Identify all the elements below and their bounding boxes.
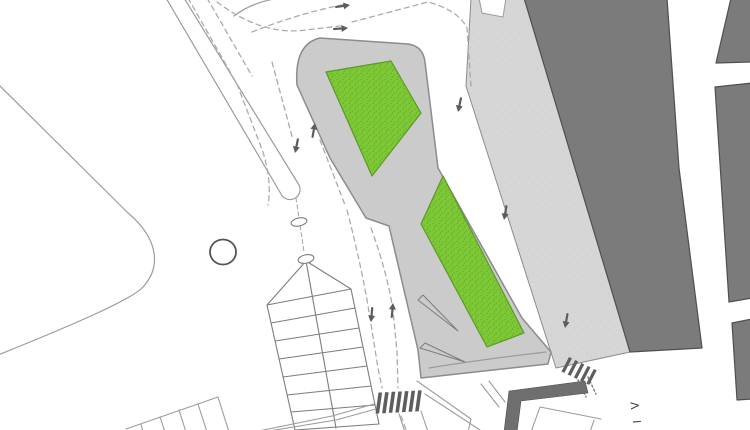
contraflow-dashed-down	[272, 62, 293, 140]
marker-oval-north	[290, 216, 307, 227]
crosswalk-main-bar	[415, 390, 422, 411]
stairs-structure	[267, 261, 379, 430]
road-edges-southeast	[417, 381, 480, 430]
lane-arrow-south-3	[566, 314, 567, 321]
crosswalk-main-bar	[376, 393, 383, 414]
contraflow-arrow-down	[296, 139, 298, 146]
wall-band-south	[504, 381, 588, 430]
flow-arrow-east-2	[334, 28, 341, 29]
median-strip	[166, 0, 300, 200]
road-edges-southwest	[254, 404, 376, 430]
island-lane-dashed-down	[347, 210, 382, 388]
ramp-lines-south	[481, 381, 505, 407]
building-southeast	[732, 319, 750, 400]
building-east	[715, 83, 750, 302]
plan-layers: VI	[0, 0, 750, 430]
crosswalk-main-bar	[389, 392, 396, 413]
bollard-circle	[210, 240, 236, 265]
island-lane-arrow-up	[392, 309, 393, 316]
turn-dashed-lower	[217, 2, 340, 31]
building-outline-south	[531, 407, 601, 430]
island-lane-arrow-up-head	[389, 303, 396, 310]
lane-arrow-south-1-head	[456, 105, 463, 112]
lane-arrow-south-1	[459, 98, 461, 105]
site-plan-canvas: VI	[0, 0, 750, 430]
flow-arrow-east-2-head	[341, 25, 348, 32]
parking-stalls	[126, 397, 229, 430]
building-northeast	[716, 0, 750, 63]
street-label-i: I	[631, 420, 644, 424]
flow-arrow-east-1	[336, 6, 343, 7]
flow-arrow-east-1-head	[343, 2, 350, 9]
road-edge-finger	[0, 84, 155, 355]
island-lane-arrow-down	[372, 308, 373, 315]
crosswalk-main-bar	[382, 392, 389, 413]
street-label-v: V	[628, 401, 642, 410]
island-lane-arrow-down-head	[368, 315, 375, 322]
lane-arrow-south-2	[505, 206, 506, 213]
crosswalk-main-bar	[395, 392, 402, 413]
marker-oval-south	[297, 253, 314, 265]
crosswalk-main-bar	[409, 391, 416, 412]
crosswalk-main-bar	[402, 391, 409, 412]
contraflow-arrow-down-head	[293, 146, 300, 153]
site-plan-svg: VI	[0, 0, 750, 430]
road-corner-arc	[234, 0, 280, 16]
contraflow-arrow-up	[313, 129, 314, 136]
